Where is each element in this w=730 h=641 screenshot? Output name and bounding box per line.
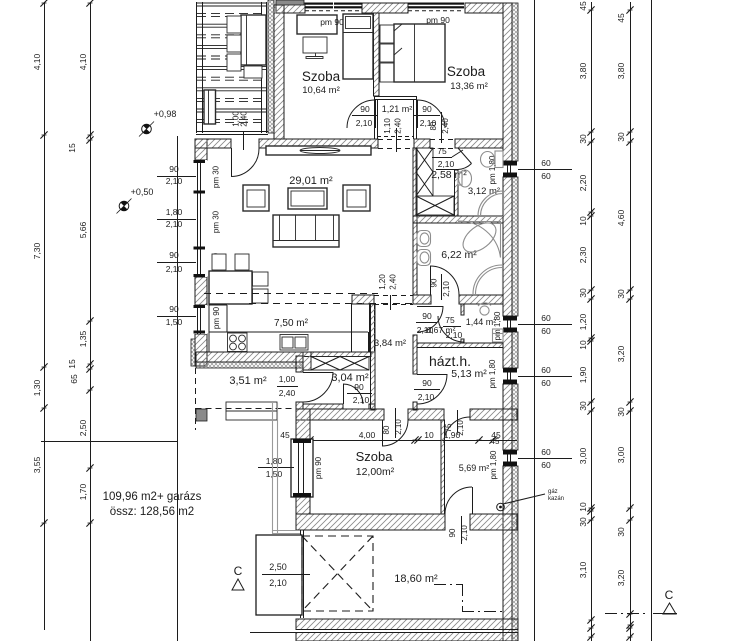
svg-text:C: C [234,564,243,578]
svg-text:1,35: 1,35 [78,330,88,347]
svg-text:6,22 m²: 6,22 m² [441,249,477,261]
svg-text:10: 10 [424,430,434,440]
svg-text:pm 90: pm 90 [314,456,323,479]
svg-text:30: 30 [578,401,588,411]
svg-text:80: 80 [382,425,391,434]
svg-text:5,13 m²: 5,13 m² [451,368,487,380]
svg-text:2,50: 2,50 [269,562,287,572]
svg-text:1,50: 1,50 [266,469,283,479]
svg-text:1,00: 1,00 [279,374,296,384]
svg-text:4,60: 4,60 [616,209,626,226]
svg-text:45: 45 [491,430,501,440]
svg-text:pm 90: pm 90 [212,306,221,329]
svg-text:90: 90 [169,250,179,260]
svg-text:1,20: 1,20 [378,274,387,290]
svg-text:+0,50: +0,50 [131,187,154,197]
svg-text:109,96 m2+ garázs: 109,96 m2+ garázs [103,491,202,503]
svg-text:1,80: 1,80 [166,207,183,217]
svg-text:90: 90 [422,104,432,114]
svg-text:3,00: 3,00 [578,447,588,464]
svg-text:pm 30: pm 30 [212,210,221,233]
svg-text:2,40: 2,40 [240,111,249,127]
svg-text:2,10: 2,10 [442,281,451,297]
svg-text:Szoba: Szoba [447,64,486,79]
svg-text:2,10: 2,10 [166,264,183,274]
svg-text:1,90: 1,90 [578,366,588,383]
svg-text:2,40: 2,40 [394,118,403,134]
svg-text:pm 1,80: pm 1,80 [488,155,497,184]
svg-text:30: 30 [616,527,626,537]
svg-text:30: 30 [578,517,588,527]
svg-text:65: 65 [69,374,79,384]
svg-text:5,69 m²: 5,69 m² [459,463,490,473]
svg-text:30: 30 [616,289,626,299]
svg-text:13,36 m²: 13,36 m² [450,81,488,92]
svg-text:45: 45 [616,13,626,23]
svg-text:15: 15 [67,143,77,153]
svg-text:2,10: 2,10 [356,118,373,128]
svg-text:7,50 m²: 7,50 m² [274,318,309,329]
svg-text:pm 30: pm 30 [212,165,221,188]
svg-text:90: 90 [169,304,179,314]
svg-text:3,80: 3,80 [578,62,588,79]
svg-text:18,60 m²: 18,60 m² [394,573,438,585]
svg-text:30: 30 [616,132,626,142]
svg-text:1,70: 1,70 [78,483,88,500]
svg-text:2,20: 2,20 [578,174,588,191]
svg-text:2,10: 2,10 [418,392,435,402]
svg-text:3,20: 3,20 [616,345,626,362]
svg-text:10: 10 [578,340,588,350]
svg-text:10: 10 [578,216,588,226]
svg-text:3,80: 3,80 [616,62,626,79]
svg-text:1,21 m²: 1,21 m² [382,104,413,114]
svg-text:10,64 m²: 10,64 m² [302,85,340,96]
svg-text:60: 60 [541,365,551,375]
svg-text:1,30: 1,30 [32,379,42,396]
svg-text:4,10: 4,10 [78,53,88,70]
svg-text:3,00: 3,00 [616,446,626,463]
svg-text:75: 75 [445,315,455,325]
svg-text:90: 90 [354,382,364,392]
svg-text:3,51 m²: 3,51 m² [229,375,267,387]
svg-text:+0,98: +0,98 [154,109,177,119]
svg-text:Szoba: Szoba [356,449,394,464]
svg-text:2,50: 2,50 [78,419,88,436]
svg-text:90: 90 [360,104,370,114]
svg-text:4,10: 4,10 [32,53,42,70]
svg-text:2,40: 2,40 [389,274,398,290]
svg-text:7,30: 7,30 [32,242,42,259]
svg-text:1,44 m²: 1,44 m² [466,317,497,327]
svg-text:gáz: gáz [548,489,558,495]
svg-text:2,10: 2,10 [269,578,287,588]
svg-text:60: 60 [541,158,551,168]
svg-text:60: 60 [541,171,551,181]
svg-text:1,50: 1,50 [166,317,183,327]
svg-text:90: 90 [422,378,432,388]
svg-text:90: 90 [169,164,179,174]
svg-text:pm 1,80: pm 1,80 [489,450,498,479]
svg-text:2,10: 2,10 [394,419,403,435]
svg-text:2,10: 2,10 [420,118,437,128]
svg-text:2,10: 2,10 [166,176,183,186]
svg-text:90: 90 [422,311,432,321]
svg-text:2,10: 2,10 [166,219,183,229]
svg-text:3,84 m²: 3,84 m² [374,338,406,349]
svg-text:C: C [665,588,674,602]
svg-text:1,20: 1,20 [578,313,588,330]
svg-text:60: 60 [541,447,551,457]
svg-text:3,55: 3,55 [32,456,42,473]
svg-text:12,00m²: 12,00m² [356,466,395,478]
svg-text:60: 60 [541,378,551,388]
svg-text:15: 15 [67,359,77,369]
svg-text:össz: 128,56 m2: össz: 128,56 m2 [110,506,194,518]
svg-text:pm 90: pm 90 [426,15,450,25]
svg-text:pm 1,80: pm 1,80 [488,359,497,388]
svg-text:kazán: kazán [548,496,564,502]
svg-text:2,30: 2,30 [578,246,588,263]
svg-text:1,10: 1,10 [383,118,392,134]
svg-text:30: 30 [578,288,588,298]
svg-text:2,40: 2,40 [279,388,296,398]
svg-text:45: 45 [578,1,588,11]
svg-text:pm 90: pm 90 [320,17,344,27]
svg-text:60: 60 [541,326,551,336]
svg-text:60: 60 [541,460,551,470]
svg-text:75: 75 [437,146,447,156]
svg-text:4,00: 4,00 [359,430,376,440]
svg-text:házt.h.: házt.h. [429,353,471,369]
svg-text:0,67 m²: 0,67 m² [427,325,456,335]
svg-text:2,10: 2,10 [460,525,469,541]
svg-text:1,80: 1,80 [266,456,283,466]
svg-text:Szoba: Szoba [302,69,341,84]
svg-text:29,01 m²: 29,01 m² [289,175,333,187]
svg-text:90: 90 [430,278,439,287]
svg-text:30: 30 [616,407,626,417]
svg-text:60: 60 [541,313,551,323]
svg-text:2,10: 2,10 [438,159,455,169]
svg-text:2,40: 2,40 [441,118,450,134]
svg-text:1,90: 1,90 [444,430,461,440]
svg-text:3,10: 3,10 [578,561,588,578]
svg-text:3,20: 3,20 [616,569,626,586]
svg-text:45: 45 [280,430,290,440]
svg-text:30: 30 [578,134,588,144]
svg-text:5,66: 5,66 [78,221,88,238]
svg-text:90: 90 [448,528,457,537]
svg-text:10: 10 [578,502,588,512]
